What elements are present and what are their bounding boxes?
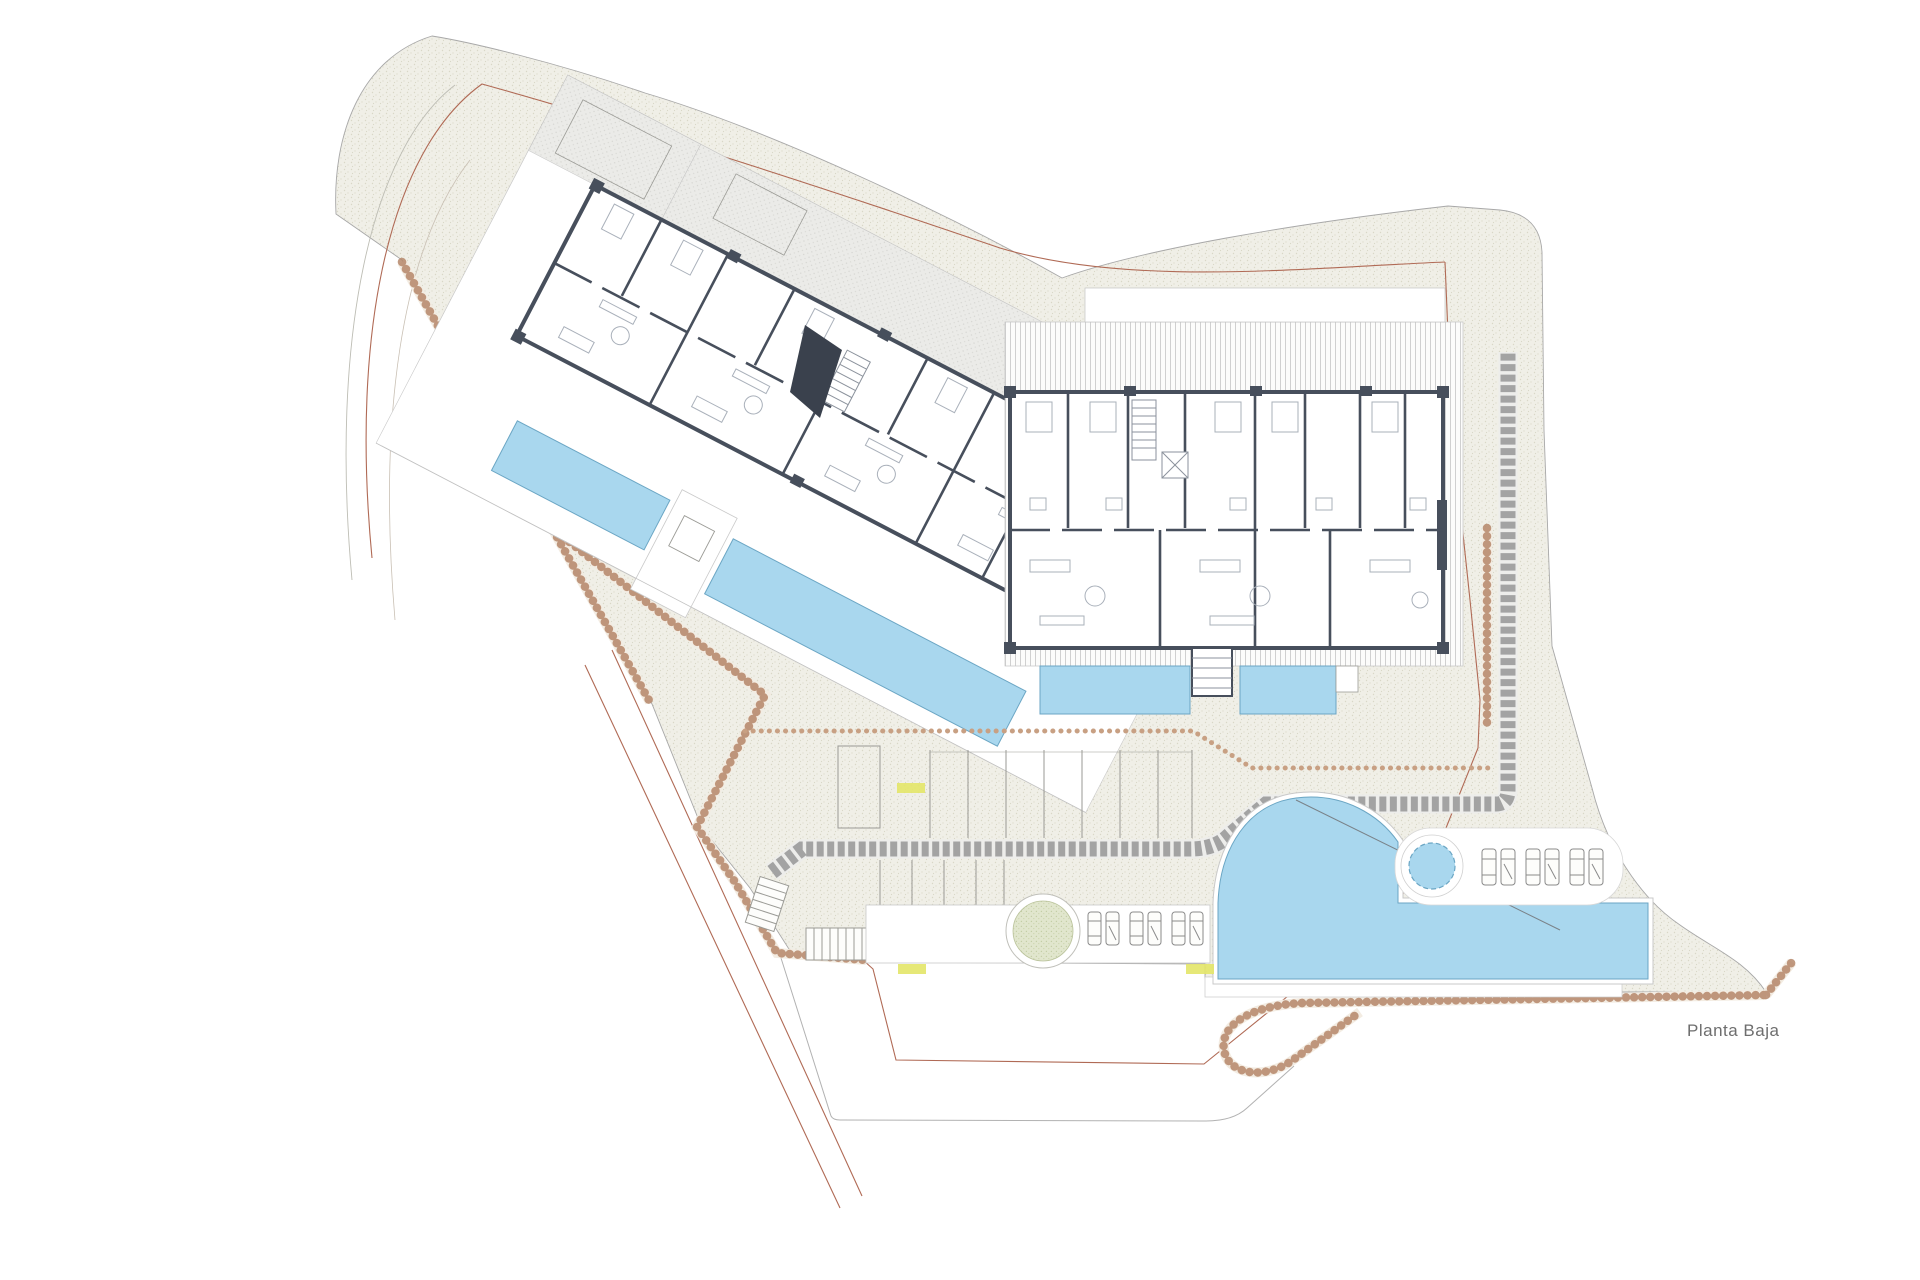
east-pool-step — [1336, 666, 1358, 692]
east-pool-b — [1240, 666, 1336, 714]
east-pool-a — [1040, 666, 1190, 714]
floor-plan-page: Planta Baja — [0, 0, 1920, 1280]
east-lower-stair — [1192, 648, 1232, 696]
elevation-marker-1 — [897, 783, 925, 793]
east-roof-strip — [1085, 288, 1445, 322]
stone-border-south-loop — [1224, 1003, 1360, 1072]
east-building — [1004, 386, 1449, 654]
plan-title: Planta Baja — [1687, 1021, 1779, 1040]
stone-border-south-corner — [1766, 962, 1792, 995]
tree — [1006, 894, 1080, 968]
site-plan-drawing: Planta Baja — [0, 0, 1920, 1280]
elevation-marker-3 — [1186, 964, 1214, 974]
elevation-marker-2 — [898, 964, 926, 974]
spa-circle — [1401, 835, 1463, 897]
